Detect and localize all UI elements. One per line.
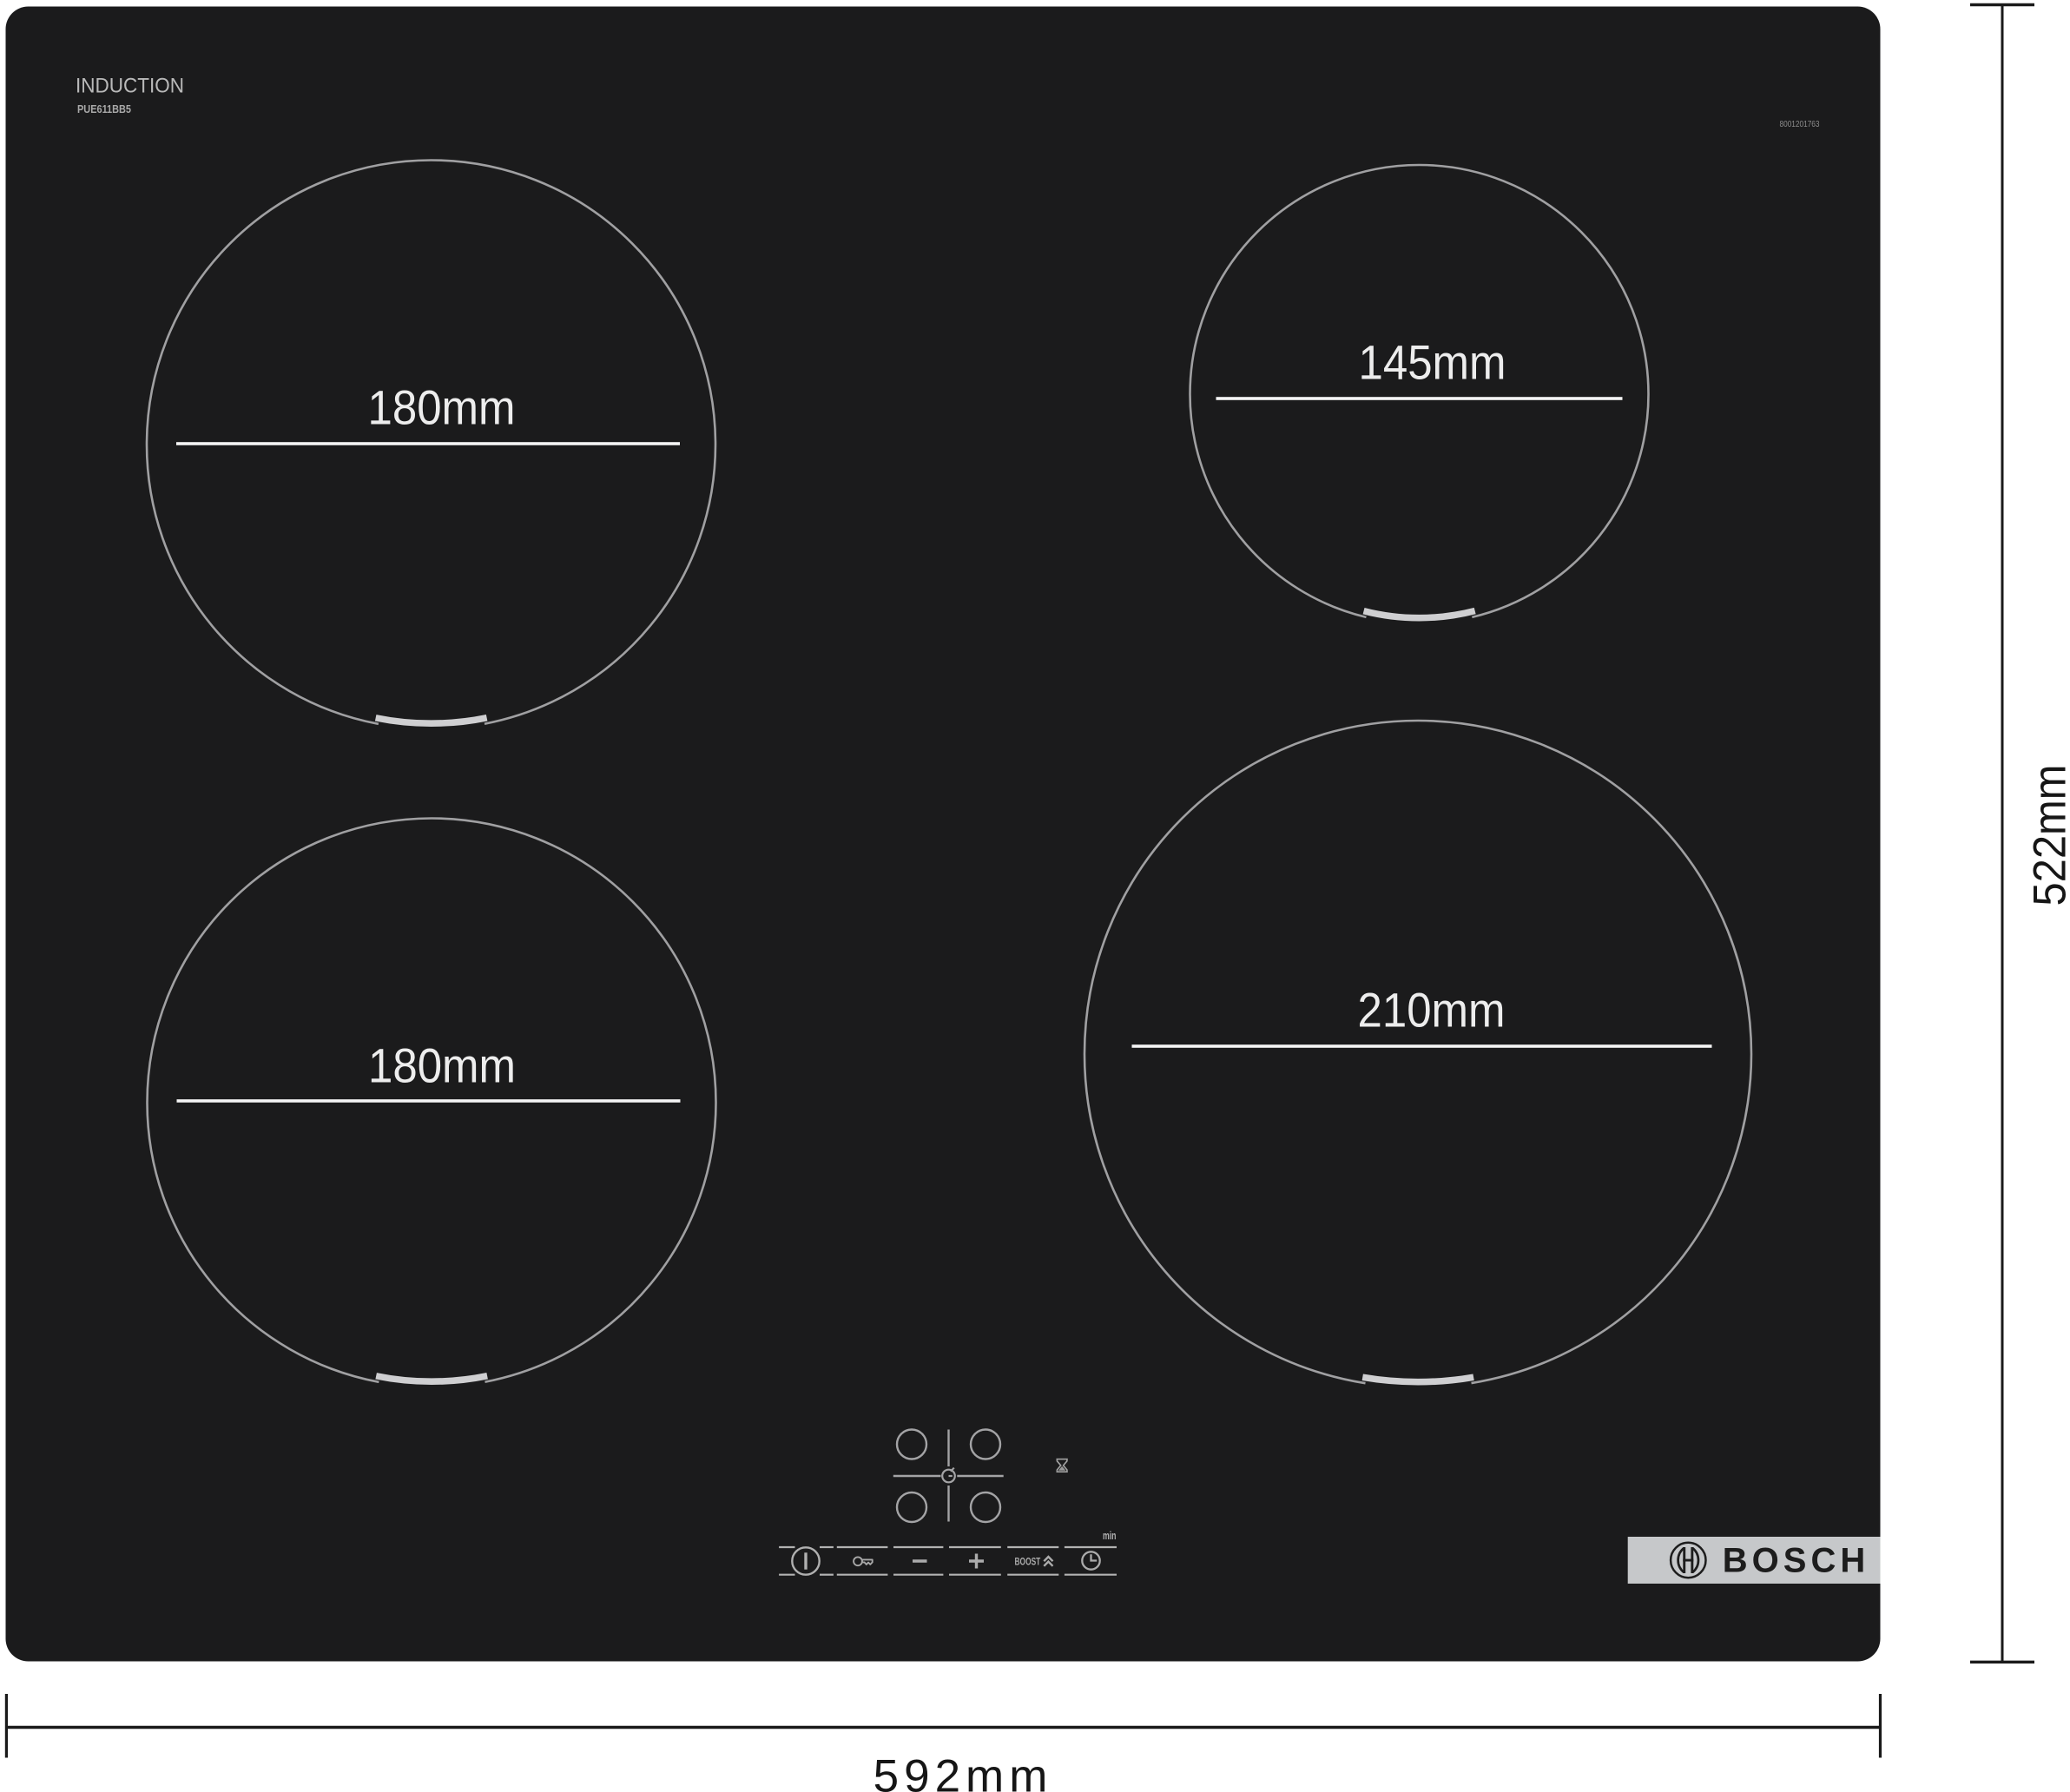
svg-text:BOSCH: BOSCH <box>1723 1542 1869 1580</box>
svg-text:180mm: 180mm <box>368 1038 516 1093</box>
svg-text:INDUCTION: INDUCTION <box>76 75 184 98</box>
svg-text:8001201763: 8001201763 <box>1780 120 1820 129</box>
svg-text:BOOST: BOOST <box>1015 1558 1041 1568</box>
svg-text:522mm: 522mm <box>2025 765 2070 906</box>
svg-text:145mm: 145mm <box>1359 335 1506 390</box>
svg-text:592mm: 592mm <box>873 1751 1053 1792</box>
svg-text:min: min <box>1103 1529 1117 1542</box>
svg-text:180mm: 180mm <box>368 380 516 435</box>
svg-text:210mm: 210mm <box>1358 983 1506 1038</box>
svg-text:PUE611BB5: PUE611BB5 <box>77 103 131 115</box>
